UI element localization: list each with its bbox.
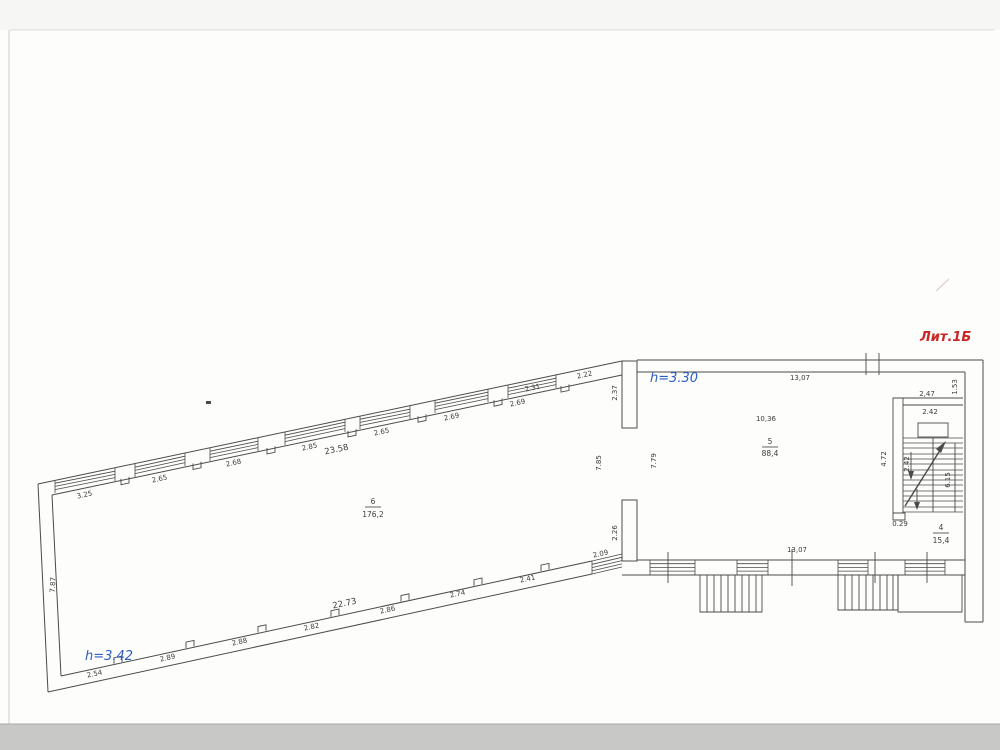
dim-stair-corner: 1.53 bbox=[951, 379, 959, 395]
room4-number: 4 bbox=[939, 523, 944, 532]
dim-bottom-7: 2.41 bbox=[519, 574, 536, 585]
dim-top-1: 3.25 bbox=[76, 490, 93, 501]
room6-number: 6 bbox=[371, 497, 376, 506]
dim-stair-left: 4.72 bbox=[880, 451, 888, 467]
dim-top-7: 2.69 bbox=[509, 398, 526, 409]
scan-scratch bbox=[936, 279, 949, 291]
external-stair-flight-left bbox=[700, 575, 762, 612]
scanned-floor-plan-page: 3.25 2.65 2.68 2.85 2.65 2.69 2.69 2.31 … bbox=[0, 0, 1000, 750]
floor-plan-svg: 3.25 2.65 2.68 2.85 2.65 2.69 2.69 2.31 … bbox=[0, 0, 1000, 750]
room5-number: 5 bbox=[768, 437, 773, 446]
scan-bottom-band bbox=[0, 724, 1000, 750]
left-wing-walls bbox=[38, 361, 622, 692]
left-wing-left-wall-outer bbox=[38, 484, 48, 692]
dim-top-9: 2.22 bbox=[576, 370, 593, 381]
vertical-dimensions: 7.87 2.37 2.26 7.85 7.79 4.72 2.42 6.15 … bbox=[49, 379, 959, 593]
dim-top-3: 2.68 bbox=[225, 458, 242, 469]
bottom-wall-pier-notches bbox=[114, 563, 549, 663]
building-litera: Лит.1Б bbox=[919, 330, 971, 345]
dim-bottom-total: 22.73 bbox=[332, 597, 358, 612]
stair-down-arrow-2-head bbox=[914, 502, 920, 510]
dim-stair-top: 2,47 bbox=[919, 390, 935, 398]
annotations: h=3.42 h=3.30 Лит.1Б bbox=[85, 330, 971, 664]
external-platform bbox=[898, 575, 962, 612]
room6-area: 176,2 bbox=[362, 510, 384, 519]
left-wing-bottom-wall-outer bbox=[48, 574, 592, 692]
left-wing-top-wall-inner bbox=[52, 375, 622, 495]
dim-top-6: 2.69 bbox=[443, 412, 460, 423]
pier-bottom bbox=[622, 500, 637, 561]
dim-top-4: 2.85 bbox=[301, 442, 318, 453]
dim-left-wall: 7.87 bbox=[49, 577, 58, 593]
dim-stair-flight: 2.42 bbox=[903, 456, 911, 472]
dim-room5-width: 10,36 bbox=[756, 415, 777, 423]
stray-mark bbox=[206, 401, 211, 404]
top-wall-window-hatches bbox=[55, 375, 556, 493]
dim-stair-bottom: 0.29 bbox=[892, 520, 908, 528]
room-labels: 6 176,2 5 88,4 4 15,4 bbox=[362, 437, 949, 545]
dim-top-2: 2.65 bbox=[151, 474, 168, 485]
scan-artifacts bbox=[0, 0, 1000, 750]
right-wing-right-wall bbox=[965, 360, 983, 622]
left-wing-bottom-wall-inner bbox=[61, 561, 592, 676]
dim-pier-bottom: 2.26 bbox=[611, 525, 619, 541]
dim-right-bottom: 13,07 bbox=[787, 546, 807, 554]
pier-top bbox=[622, 361, 637, 428]
external-stairs bbox=[700, 575, 962, 612]
dim-top-5: 2.65 bbox=[373, 427, 390, 438]
dim-right-top: 13,07 bbox=[790, 374, 810, 382]
dim-stair-right: 6.15 bbox=[944, 472, 952, 488]
scan-top-band bbox=[0, 0, 1000, 30]
height-left-wing: h=3.42 bbox=[85, 649, 133, 664]
connector-piers bbox=[622, 361, 637, 561]
height-right-wing: h=3.30 bbox=[650, 371, 698, 386]
bottom-wall-window-hatches bbox=[650, 560, 945, 575]
dim-stair-inner-top: 2.42 bbox=[922, 408, 938, 416]
external-stair-flight-right bbox=[838, 575, 898, 610]
stairwell-top-wall bbox=[903, 398, 963, 405]
left-wing-top-wall-outer bbox=[38, 361, 622, 484]
dim-bottom-6: 2.74 bbox=[449, 588, 466, 599]
dim-pier-top: 2.37 bbox=[611, 385, 619, 401]
top-wall-pier-notches bbox=[121, 384, 569, 484]
room5-area: 88,4 bbox=[762, 449, 779, 458]
dim-top-total: 23.58 bbox=[324, 443, 350, 458]
dim-hall-right: 7.79 bbox=[650, 453, 658, 469]
stair-landing bbox=[918, 423, 948, 437]
dim-hall-left: 7.85 bbox=[595, 455, 603, 471]
room4-area: 15,4 bbox=[933, 536, 950, 545]
